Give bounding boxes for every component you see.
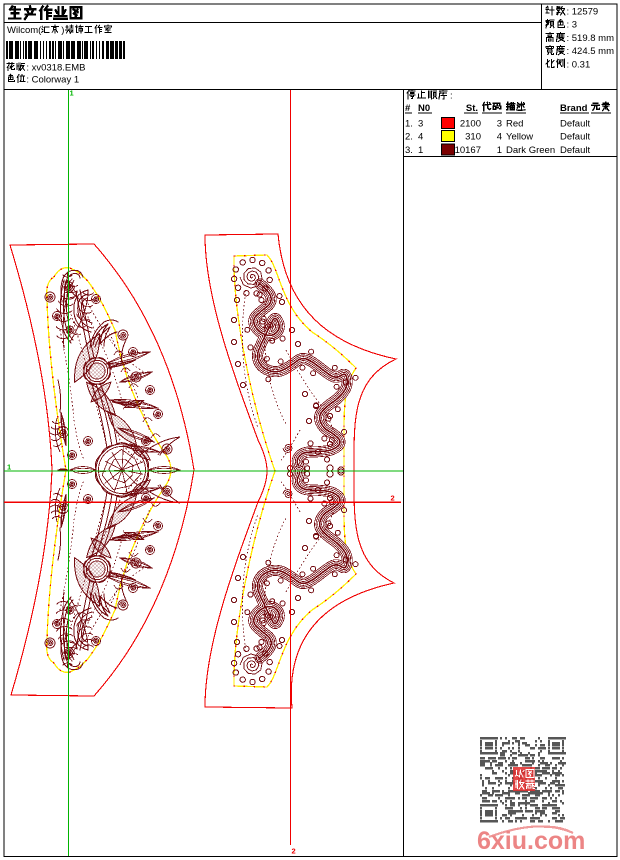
svg-text:: 424.5 mm: : 424.5 mm — [566, 46, 614, 57]
svg-text:2: 2 — [292, 847, 296, 856]
svg-text:1: 1 — [7, 463, 11, 472]
svg-text:2.: 2. — [405, 132, 413, 143]
svg-text:: 12579: : 12579 — [566, 7, 598, 18]
svg-text:Yellow: Yellow — [506, 132, 533, 143]
svg-text:Default: Default — [560, 145, 590, 156]
svg-text:Dark Green: Dark Green — [506, 145, 555, 156]
svg-text:: Colorway 1: : Colorway 1 — [26, 75, 79, 86]
svg-text:3.: 3. — [405, 145, 413, 156]
svg-text:St.: St. — [466, 103, 478, 114]
svg-text:Default: Default — [560, 132, 590, 143]
svg-text:2: 2 — [391, 494, 395, 503]
svg-text:Brand: Brand — [560, 103, 588, 114]
svg-text:: 0.31: : 0.31 — [566, 59, 590, 70]
svg-text:: 519.8 mm: : 519.8 mm — [566, 33, 614, 44]
svg-text:3: 3 — [418, 119, 423, 130]
svg-text:6xiu.com: 6xiu.com — [477, 827, 585, 855]
svg-text:4: 4 — [418, 132, 423, 143]
svg-text:4: 4 — [497, 132, 502, 143]
svg-text:: xv0318.EMB: : xv0318.EMB — [26, 63, 85, 74]
svg-text:1: 1 — [418, 145, 423, 156]
svg-text:310: 310 — [465, 132, 481, 143]
svg-text:N0: N0 — [418, 103, 430, 114]
svg-text:1: 1 — [497, 145, 502, 156]
svg-text:10167: 10167 — [455, 145, 481, 156]
svg-text:): ) — [61, 25, 64, 36]
svg-text:2100: 2100 — [460, 119, 481, 130]
svg-text:3: 3 — [497, 119, 502, 130]
svg-text::: : — [450, 91, 453, 102]
svg-text:Default: Default — [560, 119, 590, 130]
svg-text:1: 1 — [70, 89, 74, 98]
svg-text:Red: Red — [506, 119, 523, 130]
svg-text:#: # — [405, 103, 411, 114]
svg-text:: 3: : 3 — [566, 20, 577, 31]
svg-text:1.: 1. — [405, 119, 413, 130]
svg-text:Wilcom(: Wilcom( — [7, 25, 42, 36]
